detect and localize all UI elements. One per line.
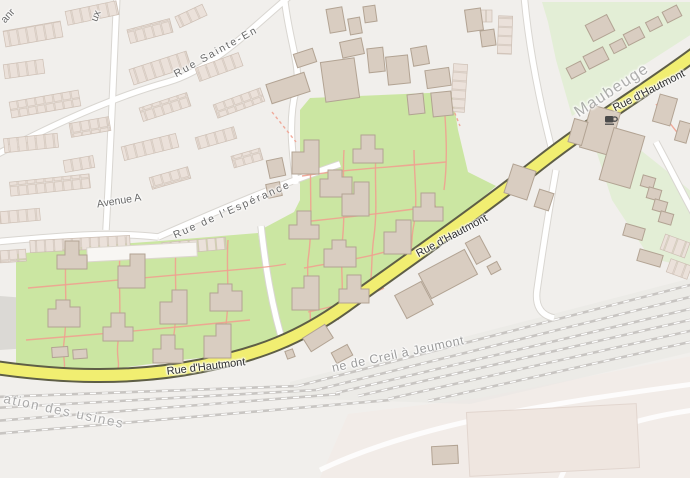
- industrial-building: [466, 404, 639, 477]
- map-viewport[interactable]: Maubeuge anr ux Rue Sainte-En Avenue A R…: [0, 0, 690, 478]
- map-canvas: [0, 0, 690, 478]
